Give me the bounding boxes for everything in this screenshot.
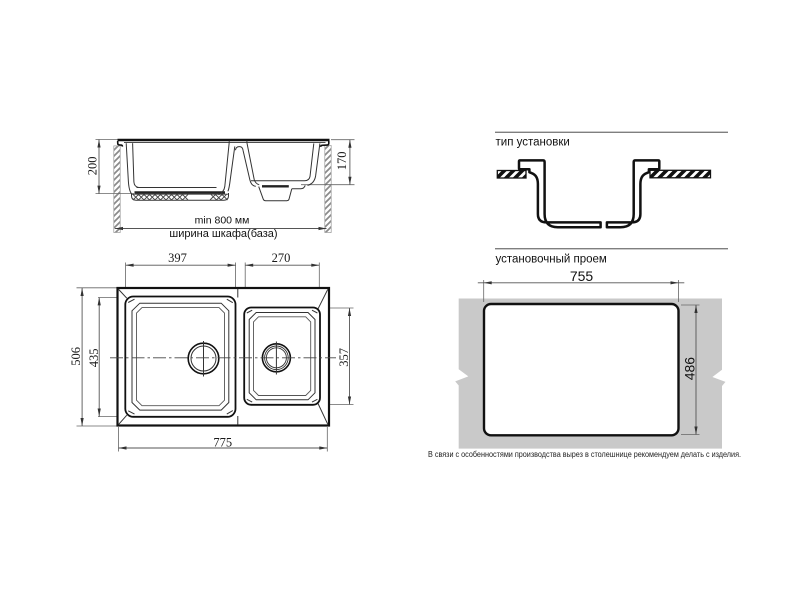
svg-text:В связи с особенностями произв: В связи с особенностями производства выр… [428, 450, 741, 459]
svg-text:min 800 мм: min 800 мм [195, 215, 250, 227]
svg-text:357: 357 [337, 348, 351, 367]
svg-text:755: 755 [570, 268, 594, 284]
svg-text:установочный проем: установочный проем [496, 254, 607, 266]
svg-text:270: 270 [272, 251, 291, 265]
svg-text:506: 506 [69, 347, 83, 366]
svg-text:486: 486 [682, 357, 698, 381]
svg-text:397: 397 [168, 251, 187, 265]
svg-text:775: 775 [213, 435, 232, 449]
svg-text:200: 200 [86, 156, 100, 175]
svg-text:435: 435 [87, 348, 101, 367]
svg-text:170: 170 [335, 151, 349, 170]
svg-text:тип установки: тип установки [496, 136, 570, 148]
svg-text:ширина шкафа(база): ширина шкафа(база) [169, 228, 277, 240]
